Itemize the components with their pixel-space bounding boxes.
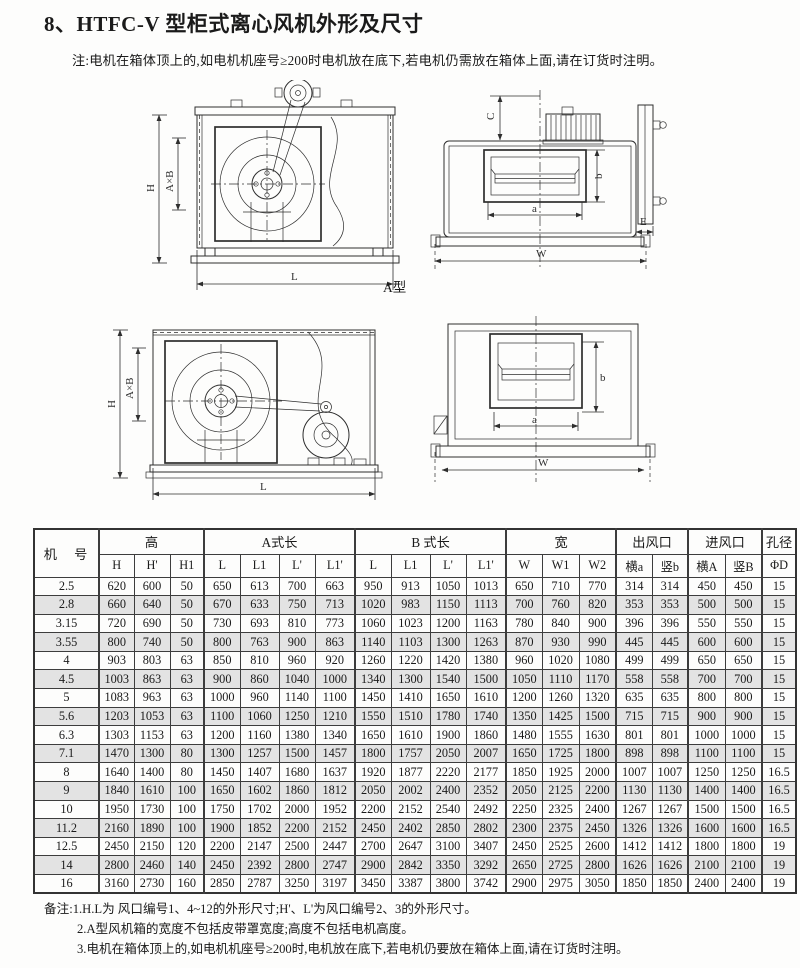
- value-cell: 1263: [466, 633, 506, 652]
- value-cell: 750: [279, 596, 315, 615]
- value-cell: 1610: [134, 782, 170, 801]
- value-cell: 1740: [466, 707, 506, 726]
- value-cell: 558: [652, 670, 688, 689]
- value-cell: 1130: [652, 782, 688, 801]
- value-cell: 2450: [506, 837, 542, 856]
- value-cell: 1840: [99, 782, 134, 801]
- value-cell: 1650: [204, 782, 240, 801]
- value-cell: 1007: [652, 763, 688, 782]
- drawing-b-end-view: b a W: [428, 312, 713, 490]
- drawing-b-side-view: H A×B L: [108, 308, 405, 506]
- value-cell: 15: [762, 689, 796, 708]
- value-cell: 801: [616, 726, 652, 745]
- cabinet-outline: [431, 90, 650, 270]
- value-cell: 820: [579, 596, 616, 615]
- value-cell: 1000: [315, 670, 355, 689]
- value-cell: 1730: [134, 800, 170, 819]
- value-cell: 2007: [466, 744, 506, 763]
- table-row: 2.56206005065061370066395091310501013650…: [34, 577, 796, 596]
- value-cell: 670: [204, 596, 240, 615]
- subheader: 横a: [616, 554, 652, 577]
- value-cell: 3250: [279, 875, 315, 894]
- value-cell: 1100: [315, 689, 355, 708]
- value-cell: 800: [204, 633, 240, 652]
- value-cell: 1540: [430, 670, 466, 689]
- value-cell: 15: [762, 633, 796, 652]
- value-cell: 1260: [355, 651, 391, 670]
- value-cell: 1725: [542, 744, 579, 763]
- dim-label-W: W: [538, 457, 549, 469]
- value-cell: 720: [99, 614, 134, 633]
- value-cell: 633: [240, 596, 279, 615]
- value-cell: 1267: [616, 800, 652, 819]
- model-cell: 14: [34, 856, 99, 875]
- value-cell: 2100: [688, 856, 725, 875]
- table-body: 2.56206005065061370066395091310501013650…: [34, 577, 796, 893]
- value-cell: 900: [725, 707, 762, 726]
- value-cell: 1500: [279, 744, 315, 763]
- value-cell: 760: [542, 596, 579, 615]
- value-cell: 15: [762, 744, 796, 763]
- header-group-a-length: A式长: [204, 529, 355, 554]
- value-cell: 1060: [240, 707, 279, 726]
- cabinet-outline: [146, 330, 382, 478]
- value-cell: 1952: [315, 800, 355, 819]
- value-cell: 1163: [466, 614, 506, 633]
- value-cell: 2460: [134, 856, 170, 875]
- table-row: 8164014008014501407168016371920187722202…: [34, 763, 796, 782]
- value-cell: 499: [616, 651, 652, 670]
- model-cell: 16: [34, 875, 99, 894]
- value-cell: 2600: [579, 837, 616, 856]
- header-group-b-length: B 式长: [355, 529, 506, 554]
- value-cell: 120: [170, 837, 204, 856]
- cabinet-outline: [191, 100, 399, 263]
- value-cell: 635: [652, 689, 688, 708]
- subheader: L': [279, 554, 315, 577]
- value-cell: 1900: [204, 819, 240, 838]
- value-cell: 2447: [315, 837, 355, 856]
- subheader: 横A: [688, 554, 725, 577]
- value-cell: 100: [170, 782, 204, 801]
- model-cell: 11.2: [34, 819, 99, 838]
- value-cell: 650: [688, 651, 725, 670]
- value-cell: 1023: [391, 614, 430, 633]
- value-cell: 1850: [652, 875, 688, 894]
- value-cell: 445: [616, 633, 652, 652]
- value-cell: 2125: [542, 782, 579, 801]
- subheader: L1': [466, 554, 506, 577]
- table-row: 6.31303115363120011601380134016501610190…: [34, 726, 796, 745]
- value-cell: 1203: [99, 707, 134, 726]
- value-cell: 1425: [542, 707, 579, 726]
- value-cell: 2492: [466, 800, 506, 819]
- dim-label-a: a: [532, 414, 537, 426]
- value-cell: 1200: [204, 726, 240, 745]
- model-cell: 12.5: [34, 837, 99, 856]
- value-cell: 2325: [542, 800, 579, 819]
- header-note: 注:电机在箱体顶上的,如电机机座号≥200时电机放在底下,若电机仍需放在箱体上面…: [72, 50, 663, 69]
- value-cell: 63: [170, 707, 204, 726]
- subheader: L: [204, 554, 240, 577]
- value-cell: 3407: [466, 837, 506, 856]
- value-cell: 2200: [579, 782, 616, 801]
- value-cell: 1340: [315, 726, 355, 745]
- value-cell: 801: [652, 726, 688, 745]
- value-cell: 1412: [652, 837, 688, 856]
- value-cell: 1550: [355, 707, 391, 726]
- subheader: H: [99, 554, 134, 577]
- value-cell: 1457: [315, 744, 355, 763]
- value-cell: 2150: [134, 837, 170, 856]
- value-cell: 2647: [391, 837, 430, 856]
- dim-label-L: L: [291, 271, 298, 283]
- value-cell: 1500: [725, 800, 762, 819]
- value-cell: 1800: [579, 744, 616, 763]
- table-row: 3.55800740508007639008631140110313001263…: [34, 633, 796, 652]
- value-cell: 1080: [579, 651, 616, 670]
- model-cell: 5: [34, 689, 99, 708]
- subheader: 竖b: [652, 554, 688, 577]
- value-cell: 15: [762, 726, 796, 745]
- value-cell: 2250: [506, 800, 542, 819]
- table-row: 5.61203105363110010601250121015501510178…: [34, 707, 796, 726]
- value-cell: 3160: [99, 875, 134, 894]
- model-cell: 6.3: [34, 726, 99, 745]
- impeller: [165, 341, 282, 463]
- table-row: 4903803638508109609201260122014201380960…: [34, 651, 796, 670]
- dim-label-E: E: [640, 216, 647, 228]
- value-cell: 2802: [466, 819, 506, 838]
- value-cell: 1257: [240, 744, 279, 763]
- dimension-lines: b a W: [442, 342, 644, 470]
- value-cell: 900: [204, 670, 240, 689]
- value-cell: 3450: [355, 875, 391, 894]
- value-cell: 353: [616, 596, 652, 615]
- dimension-lines: H A×B L: [108, 330, 375, 500]
- model-cell: 3.15: [34, 614, 99, 633]
- value-cell: 2177: [466, 763, 506, 782]
- subheader: W2: [579, 554, 616, 577]
- value-cell: 810: [240, 651, 279, 670]
- impeller: [211, 127, 325, 242]
- value-cell: 1110: [542, 670, 579, 689]
- model-cell: 5.6: [34, 707, 99, 726]
- value-cell: 2450: [579, 819, 616, 838]
- value-cell: 1600: [688, 819, 725, 838]
- value-cell: 1150: [430, 596, 466, 615]
- value-cell: 620: [99, 577, 134, 596]
- value-cell: 898: [652, 744, 688, 763]
- value-cell: 1412: [616, 837, 652, 856]
- value-cell: 2747: [315, 856, 355, 875]
- value-cell: 1400: [688, 782, 725, 801]
- model-cell: 4: [34, 651, 99, 670]
- value-cell: 2050: [506, 782, 542, 801]
- value-cell: 450: [688, 577, 725, 596]
- value-cell: 900: [279, 633, 315, 652]
- value-cell: 3387: [391, 875, 430, 894]
- value-cell: 2450: [204, 856, 240, 875]
- value-cell: 710: [542, 577, 579, 596]
- value-cell: 990: [579, 633, 616, 652]
- value-cell: 693: [240, 614, 279, 633]
- value-cell: 1400: [134, 763, 170, 782]
- value-cell: 558: [616, 670, 652, 689]
- value-cell: 715: [652, 707, 688, 726]
- value-cell: 2525: [542, 837, 579, 856]
- value-cell: 950: [355, 577, 391, 596]
- value-cell: 1812: [315, 782, 355, 801]
- value-cell: 15: [762, 707, 796, 726]
- value-cell: 50: [170, 633, 204, 652]
- value-cell: 2050: [430, 744, 466, 763]
- dim-label-H: H: [108, 400, 118, 408]
- value-cell: 2842: [391, 856, 430, 875]
- value-cell: 1850: [506, 763, 542, 782]
- value-cell: 63: [170, 726, 204, 745]
- value-cell: 353: [652, 596, 688, 615]
- value-cell: 1800: [355, 744, 391, 763]
- value-cell: 1500: [688, 800, 725, 819]
- dim-label-W: W: [536, 248, 547, 260]
- header-group-hole-dia: 孔径: [762, 529, 796, 554]
- value-cell: 1053: [134, 707, 170, 726]
- value-cell: 1400: [725, 782, 762, 801]
- dim-label-H: H: [145, 184, 157, 192]
- table-row: 9184016101001650160218601812205020022400…: [34, 782, 796, 801]
- footnote-line: 备注:1.H.L为 风口编号1、4~12的外形尺寸;H'、L'为风口编号2、3的…: [44, 900, 629, 920]
- value-cell: 63: [170, 651, 204, 670]
- value-cell: 1380: [279, 726, 315, 745]
- value-cell: 1780: [430, 707, 466, 726]
- value-cell: 1626: [652, 856, 688, 875]
- value-cell: 1007: [616, 763, 652, 782]
- value-cell: 2850: [430, 819, 466, 838]
- model-cell: 3.55: [34, 633, 99, 652]
- value-cell: 63: [170, 689, 204, 708]
- value-cell: 920: [315, 651, 355, 670]
- value-cell: 2700: [355, 837, 391, 856]
- table-row: 12.5245021501202200214725002447270026473…: [34, 837, 796, 856]
- value-cell: 2450: [99, 837, 134, 856]
- value-cell: 19: [762, 875, 796, 894]
- value-cell: 16.5: [762, 782, 796, 801]
- value-cell: 1050: [430, 577, 466, 596]
- table-row: 7.11470130080130012571500145718001757205…: [34, 744, 796, 763]
- value-cell: 314: [652, 577, 688, 596]
- value-cell: 713: [315, 596, 355, 615]
- value-cell: 15: [762, 651, 796, 670]
- value-cell: 700: [506, 596, 542, 615]
- value-cell: 1900: [430, 726, 466, 745]
- value-cell: 1210: [315, 707, 355, 726]
- value-cell: 1380: [466, 651, 506, 670]
- value-cell: 1890: [134, 819, 170, 838]
- value-cell: 1950: [99, 800, 134, 819]
- value-cell: 1470: [99, 744, 134, 763]
- model-cell: 8: [34, 763, 99, 782]
- value-cell: 960: [240, 689, 279, 708]
- value-cell: 650: [725, 651, 762, 670]
- header-group-outlet: 出风口: [616, 529, 688, 554]
- value-cell: 2000: [279, 800, 315, 819]
- value-cell: 15: [762, 596, 796, 615]
- value-cell: 1140: [355, 633, 391, 652]
- value-cell: 2220: [430, 763, 466, 782]
- dimension-lines: H A×B L: [145, 115, 393, 290]
- footnote-line: 2.A型风机箱的宽度不包括皮带罩宽度;高度不包括电机高度。: [44, 920, 629, 940]
- value-cell: 715: [616, 707, 652, 726]
- value-cell: 550: [725, 614, 762, 633]
- dim-label-b: b: [600, 372, 606, 384]
- value-cell: 1350: [506, 707, 542, 726]
- subheader: L': [430, 554, 466, 577]
- motor-and-belt: [235, 396, 366, 465]
- table-row: 1631602730160285027873250319734503387380…: [34, 875, 796, 894]
- value-cell: 1860: [279, 782, 315, 801]
- value-cell: 600: [688, 633, 725, 652]
- value-cell: 19: [762, 837, 796, 856]
- value-cell: 903: [99, 651, 134, 670]
- subheader: H': [134, 554, 170, 577]
- value-cell: 1610: [391, 726, 430, 745]
- value-cell: 2850: [204, 875, 240, 894]
- value-cell: 1300: [430, 633, 466, 652]
- value-cell: 2402: [391, 819, 430, 838]
- table-row: 5108396363100096011401100145014101650161…: [34, 689, 796, 708]
- value-cell: 1450: [355, 689, 391, 708]
- subheader: W1: [542, 554, 579, 577]
- value-cell: 700: [725, 670, 762, 689]
- value-cell: 810: [279, 614, 315, 633]
- value-cell: 1320: [579, 689, 616, 708]
- value-cell: 1852: [240, 819, 279, 838]
- value-cell: 1610: [466, 689, 506, 708]
- model-cell: 7.1: [34, 744, 99, 763]
- value-cell: 1600: [725, 819, 762, 838]
- model-cell: 2.8: [34, 596, 99, 615]
- value-cell: 80: [170, 744, 204, 763]
- value-cell: 1020: [355, 596, 391, 615]
- value-cell: 1170: [579, 670, 616, 689]
- value-cell: 1750: [204, 800, 240, 819]
- value-cell: 1500: [466, 670, 506, 689]
- value-cell: 900: [579, 614, 616, 633]
- value-cell: 140: [170, 856, 204, 875]
- value-cell: 500: [725, 596, 762, 615]
- dim-label-AXB2: A×B: [164, 171, 176, 192]
- value-cell: 600: [725, 633, 762, 652]
- value-cell: 635: [616, 689, 652, 708]
- value-cell: 16.5: [762, 800, 796, 819]
- value-cell: 650: [204, 577, 240, 596]
- footnote-text: 1.H.L为 风口编号1、4~12的外形尺寸;H'、L'为风口编号2、3的外形尺…: [73, 902, 477, 916]
- value-cell: 1300: [204, 744, 240, 763]
- value-cell: 1013: [466, 577, 506, 596]
- value-cell: 3742: [466, 875, 506, 894]
- subheader: ΦD: [762, 554, 796, 577]
- value-cell: 3292: [466, 856, 506, 875]
- value-cell: 1702: [240, 800, 279, 819]
- value-cell: 1040: [279, 670, 315, 689]
- subheader: L: [355, 554, 391, 577]
- value-cell: 1326: [652, 819, 688, 838]
- value-cell: 898: [616, 744, 652, 763]
- subheader: L1': [315, 554, 355, 577]
- value-cell: 1050: [506, 670, 542, 689]
- header-group-inlet: 进风口: [688, 529, 762, 554]
- value-cell: 2400: [725, 875, 762, 894]
- value-cell: 860: [240, 670, 279, 689]
- value-cell: 863: [134, 670, 170, 689]
- value-cell: 1100: [688, 744, 725, 763]
- value-cell: 700: [279, 577, 315, 596]
- value-cell: 2300: [506, 819, 542, 838]
- value-cell: 983: [391, 596, 430, 615]
- value-cell: 16.5: [762, 763, 796, 782]
- header-machine-no: 机 号: [34, 529, 99, 577]
- value-cell: 770: [579, 577, 616, 596]
- value-cell: 2800: [99, 856, 134, 875]
- value-cell: 650: [506, 577, 542, 596]
- table-row: 1428002460140245023922800274729002842335…: [34, 856, 796, 875]
- value-cell: 850: [204, 651, 240, 670]
- footnote-line: 3.电机在箱体顶上的,如电机机座号≥200时,电机放在底下,若电机仍要放在箱体上…: [44, 940, 629, 960]
- value-cell: 1250: [688, 763, 725, 782]
- value-cell: 1650: [355, 726, 391, 745]
- model-cell: 10: [34, 800, 99, 819]
- subheader: H1: [170, 554, 204, 577]
- value-cell: 314: [616, 577, 652, 596]
- value-cell: 2152: [315, 819, 355, 838]
- value-cell: 2000: [579, 763, 616, 782]
- value-cell: 1130: [616, 782, 652, 801]
- value-cell: 663: [315, 577, 355, 596]
- value-cell: 1003: [99, 670, 134, 689]
- value-cell: 1626: [616, 856, 652, 875]
- value-cell: 1153: [134, 726, 170, 745]
- dim-label-C: C: [485, 113, 497, 120]
- value-cell: 3197: [315, 875, 355, 894]
- header-group-width: 宽: [506, 529, 616, 554]
- table-row: 4.51003863639008601040100013401300154015…: [34, 670, 796, 689]
- value-cell: 963: [134, 689, 170, 708]
- model-cell: 9: [34, 782, 99, 801]
- value-cell: 499: [652, 651, 688, 670]
- value-cell: 803: [134, 651, 170, 670]
- type-a-label: A型: [383, 276, 406, 296]
- value-cell: 1250: [279, 707, 315, 726]
- value-cell: 2800: [279, 856, 315, 875]
- page-title: 8、HTFC-V 型柜式离心风机外形及尺寸: [44, 8, 423, 38]
- value-cell: 1450: [204, 763, 240, 782]
- value-cell: 1850: [616, 875, 652, 894]
- dim-label-L: L: [260, 481, 267, 493]
- value-cell: 1680: [279, 763, 315, 782]
- value-cell: 2900: [355, 856, 391, 875]
- value-cell: 1200: [506, 689, 542, 708]
- value-cell: 100: [170, 819, 204, 838]
- value-cell: 900: [688, 707, 725, 726]
- value-cell: 1260: [542, 689, 579, 708]
- value-cell: 1510: [391, 707, 430, 726]
- value-cell: 1100: [725, 744, 762, 763]
- value-cell: 100: [170, 800, 204, 819]
- value-cell: 930: [542, 633, 579, 652]
- table-row: 2.86606405067063375071310209831150111370…: [34, 596, 796, 615]
- subheader: 竖B: [725, 554, 762, 577]
